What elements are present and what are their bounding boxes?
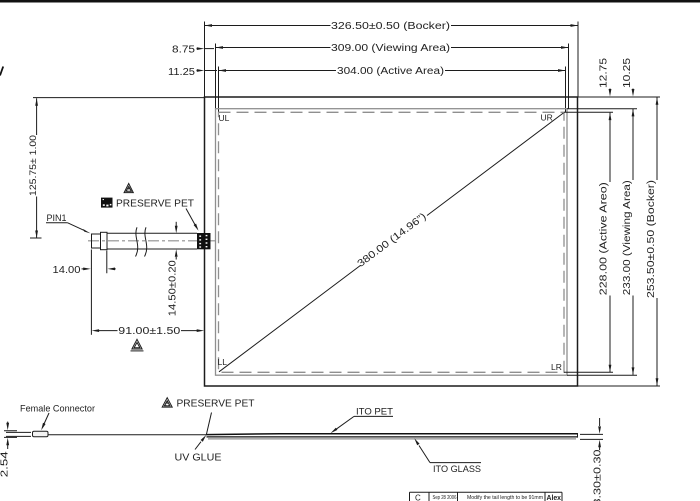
svg-text:125.75± 1.00: 125.75± 1.00 (28, 135, 39, 196)
svg-text:14.50±0.20: 14.50±0.20 (168, 260, 179, 316)
svg-text:UL: UL (219, 113, 230, 123)
svg-text:UV GLUE: UV GLUE (175, 452, 222, 463)
svg-text:Female Connector: Female Connector (20, 403, 95, 414)
svg-text:14.00: 14.00 (53, 265, 81, 276)
svg-text:Sep 28 2006: Sep 28 2006 (433, 495, 457, 501)
svg-text:91.00±1.50: 91.00±1.50 (118, 326, 181, 337)
svg-text:LR: LR (551, 362, 562, 372)
svg-text:228.00 (Active Areo): 228.00 (Active Areo) (599, 182, 610, 295)
svg-text:ITO GLASS: ITO GLASS (433, 464, 481, 475)
svg-text:PRESERVE PET: PRESERVE PET (177, 398, 255, 409)
svg-text:2.54: 2.54 (0, 451, 10, 478)
svg-text:380.00 (14.96”): 380.00 (14.96”) (356, 211, 429, 270)
svg-text:PIN1: PIN1 (47, 213, 67, 223)
svg-text:Alex: Alex (547, 493, 562, 501)
svg-text:304.00 (Active Area): 304.00 (Active Area) (337, 66, 444, 77)
svg-text:3.30±0.30: 3.30±0.30 (592, 449, 603, 501)
svg-text:LL: LL (218, 357, 228, 367)
svg-text:12.75: 12.75 (599, 57, 610, 88)
svg-text:11.25: 11.25 (168, 67, 195, 78)
svg-text:UR: UR (541, 112, 553, 122)
svg-text:8.75: 8.75 (172, 45, 196, 56)
svg-text:ITO PET: ITO PET (356, 406, 393, 417)
svg-text:C: C (415, 494, 421, 501)
svg-text:Modify the tail length to be 9: Modify the tail length to be 91mm (467, 495, 543, 501)
svg-text:10.25: 10.25 (622, 57, 633, 88)
svg-text:PRESERVE PET: PRESERVE PET (116, 198, 194, 209)
svg-text:309.00 (Viewing Area): 309.00 (Viewing Area) (331, 43, 450, 54)
svg-text:253.50±0.50 (Bocker): 253.50±0.50 (Bocker) (646, 180, 657, 298)
svg-text:233.00 (Viewing Area): 233.00 (Viewing Area) (622, 180, 633, 295)
svg-text:326.50±0.50 (Bocker): 326.50±0.50 (Bocker) (331, 21, 450, 32)
